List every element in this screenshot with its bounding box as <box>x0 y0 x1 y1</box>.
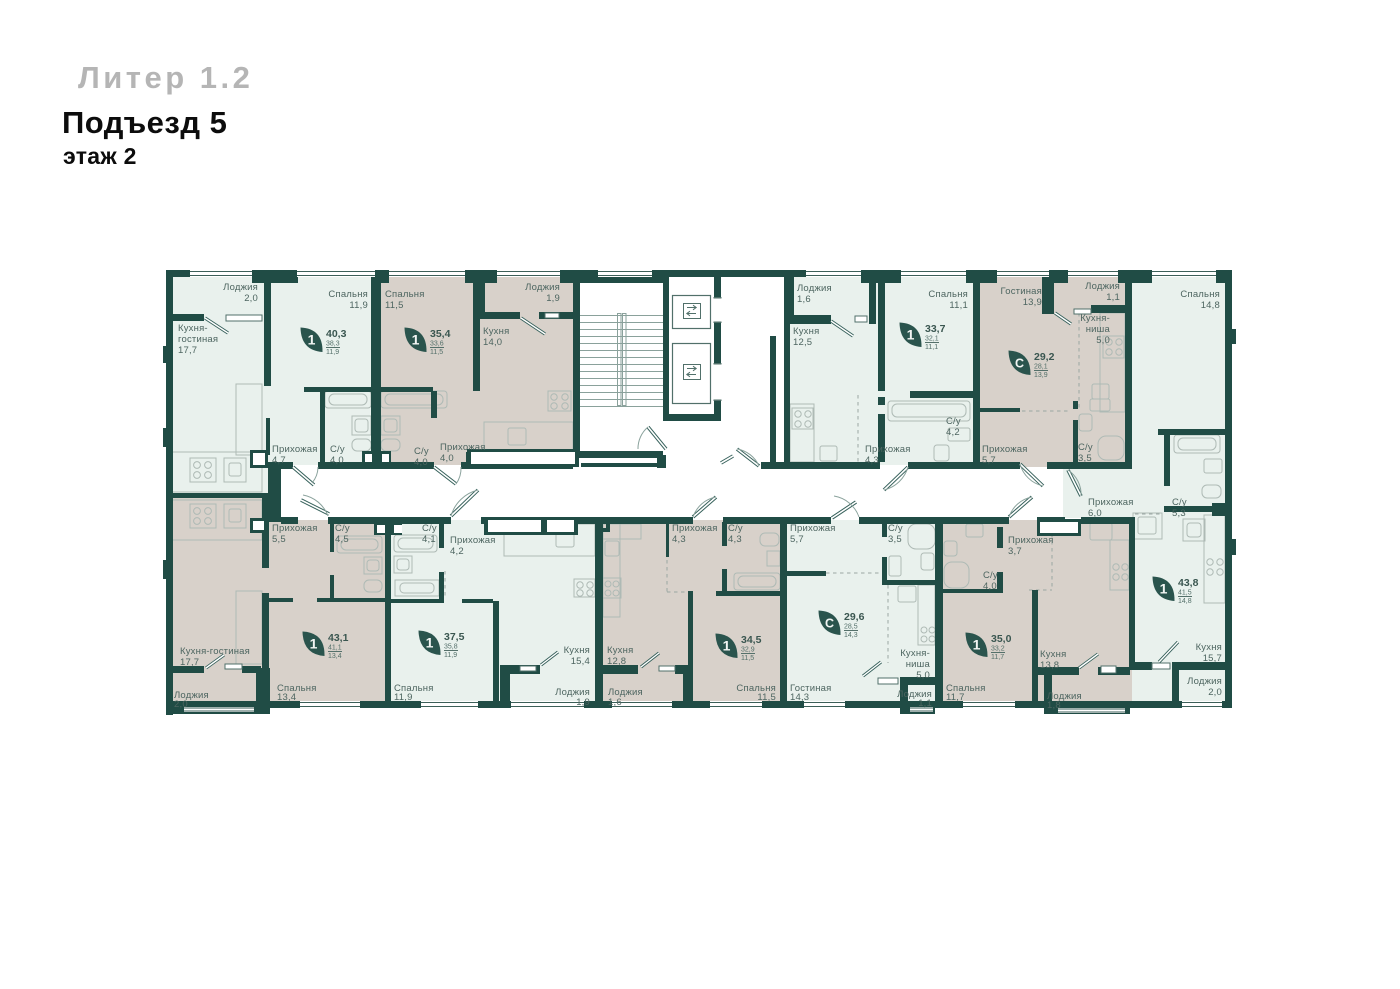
svg-text:4,0: 4,0 <box>330 455 344 466</box>
svg-text:4,0: 4,0 <box>440 453 454 464</box>
svg-text:6,0: 6,0 <box>1088 508 1102 519</box>
svg-text:Лоджия: Лоджия <box>1085 281 1120 292</box>
svg-text:1: 1 <box>723 638 731 654</box>
svg-text:4,3: 4,3 <box>672 534 686 545</box>
svg-text:13,4: 13,4 <box>328 653 342 660</box>
svg-text:Лоджия: Лоджия <box>525 282 560 293</box>
svg-text:2,0: 2,0 <box>244 293 258 304</box>
svg-text:38,3: 38,3 <box>326 341 340 348</box>
svg-text:43,1: 43,1 <box>328 632 349 644</box>
svg-text:28,5: 28,5 <box>844 624 858 631</box>
svg-text:1,6: 1,6 <box>608 697 622 708</box>
svg-text:Прихожая: Прихожая <box>672 523 718 534</box>
svg-text:11,9: 11,9 <box>326 349 339 356</box>
svg-text:11,9: 11,9 <box>444 652 457 659</box>
svg-text:15,7: 15,7 <box>1203 653 1222 664</box>
svg-text:35,8: 35,8 <box>444 644 458 651</box>
svg-text:5,0: 5,0 <box>1096 335 1110 346</box>
svg-text:Гостиная: Гостиная <box>1001 286 1042 297</box>
svg-text:5,7: 5,7 <box>790 534 804 545</box>
svg-text:11,9: 11,9 <box>394 692 413 703</box>
svg-text:1,1: 1,1 <box>918 698 932 709</box>
svg-text:4,0: 4,0 <box>414 457 428 468</box>
svg-text:32,1: 32,1 <box>925 336 939 343</box>
svg-text:11,1: 11,1 <box>949 300 968 311</box>
svg-text:ниша: ниша <box>1086 324 1111 335</box>
svg-text:Прихожая: Прихожая <box>450 535 496 546</box>
svg-text:Прихожая: Прихожая <box>272 444 318 455</box>
svg-text:11,5: 11,5 <box>385 300 404 311</box>
svg-text:1,9: 1,9 <box>576 697 590 708</box>
svg-text:Прихожая: Прихожая <box>440 442 486 453</box>
svg-text:11,5: 11,5 <box>430 349 443 356</box>
svg-text:40,3: 40,3 <box>326 328 347 340</box>
svg-text:13,4: 13,4 <box>277 692 296 703</box>
svg-text:4,2: 4,2 <box>450 546 464 557</box>
svg-text:Лоджия: Лоджия <box>797 283 832 294</box>
svg-text:12,8: 12,8 <box>607 656 626 667</box>
svg-text:С/у: С/у <box>330 444 345 455</box>
svg-text:15,4: 15,4 <box>571 656 590 667</box>
svg-text:4,2: 4,2 <box>946 427 960 438</box>
svg-text:13,8: 13,8 <box>1040 660 1059 671</box>
svg-text:14,8: 14,8 <box>1201 300 1220 311</box>
svg-text:14,3: 14,3 <box>844 632 858 639</box>
svg-text:С/у: С/у <box>983 570 998 581</box>
svg-text:5,5: 5,5 <box>272 534 286 545</box>
svg-text:С/у: С/у <box>1078 442 1093 453</box>
svg-text:1: 1 <box>973 637 981 653</box>
svg-text:32,9: 32,9 <box>741 647 755 654</box>
svg-text:Спальня: Спальня <box>928 289 968 300</box>
svg-text:Лоджия: Лоджия <box>223 282 258 293</box>
svg-text:Лоджия: Лоджия <box>1187 676 1222 687</box>
svg-text:12,5: 12,5 <box>793 337 812 348</box>
svg-text:13,9: 13,9 <box>1034 372 1048 379</box>
svg-text:Кухня: Кухня <box>793 326 819 337</box>
svg-text:С/у: С/у <box>1172 497 1187 508</box>
svg-text:Кухня-: Кухня- <box>900 648 930 659</box>
svg-text:35,0: 35,0 <box>991 633 1012 645</box>
svg-text:С/у: С/у <box>335 523 350 534</box>
svg-text:2,0: 2,0 <box>1208 687 1222 698</box>
svg-text:1: 1 <box>412 332 420 348</box>
svg-text:Прихожая: Прихожая <box>1008 535 1054 546</box>
svg-text:1,6: 1,6 <box>797 294 811 305</box>
svg-text:29,6: 29,6 <box>844 611 865 623</box>
svg-text:Прихожая: Прихожая <box>790 523 836 534</box>
svg-text:С/у: С/у <box>728 523 743 534</box>
svg-text:Спальня: Спальня <box>328 289 368 300</box>
svg-text:Прихожая: Прихожая <box>982 444 1028 455</box>
svg-text:Кухня-: Кухня- <box>1080 313 1110 324</box>
svg-text:11,1: 11,1 <box>925 344 938 351</box>
svg-text:С/у: С/у <box>946 416 961 427</box>
svg-text:1,1: 1,1 <box>1106 292 1120 303</box>
svg-text:Кухня: Кухня <box>607 645 633 656</box>
svg-text:11,5: 11,5 <box>757 692 776 703</box>
svg-text:14,3: 14,3 <box>790 692 809 703</box>
svg-text:1,9: 1,9 <box>546 293 560 304</box>
svg-text:11,5: 11,5 <box>741 655 754 662</box>
svg-text:4,3: 4,3 <box>865 455 879 466</box>
svg-text:4,0: 4,0 <box>983 581 997 592</box>
svg-text:3,5: 3,5 <box>888 534 902 545</box>
svg-text:1,8: 1,8 <box>1047 700 1061 711</box>
svg-text:Кухня: Кухня <box>564 645 590 656</box>
svg-text:33,6: 33,6 <box>430 341 444 348</box>
svg-text:33,7: 33,7 <box>925 323 946 335</box>
svg-text:Кухня: Кухня <box>1196 642 1222 653</box>
svg-text:4,5: 4,5 <box>335 534 349 545</box>
svg-text:5,0: 5,0 <box>916 670 930 681</box>
svg-text:Спальня: Спальня <box>385 289 425 300</box>
svg-text:С/у: С/у <box>414 446 429 457</box>
svg-text:Кухня: Кухня <box>483 326 509 337</box>
svg-text:11,9: 11,9 <box>349 300 368 311</box>
svg-text:11,7: 11,7 <box>991 654 1004 661</box>
svg-text:14,8: 14,8 <box>1178 598 1192 605</box>
svg-text:4,7: 4,7 <box>272 455 286 466</box>
svg-text:С: С <box>1015 357 1024 371</box>
svg-text:3,7: 3,7 <box>1008 546 1022 557</box>
svg-text:С/у: С/у <box>422 523 437 534</box>
svg-text:41,1: 41,1 <box>328 645 342 652</box>
svg-text:Прихожая: Прихожая <box>272 523 318 534</box>
svg-text:Кухня-гостиная: Кухня-гостиная <box>180 646 250 657</box>
svg-text:33,2: 33,2 <box>991 646 1005 653</box>
svg-text:4,1: 4,1 <box>422 534 436 545</box>
svg-text:1: 1 <box>426 635 434 651</box>
svg-text:С: С <box>825 617 834 631</box>
svg-text:5,7: 5,7 <box>982 455 996 466</box>
svg-text:Кухня: Кухня <box>1040 649 1066 660</box>
svg-text:Прихожая: Прихожая <box>1088 497 1134 508</box>
svg-text:2,0: 2,0 <box>174 699 188 710</box>
svg-text:1: 1 <box>310 636 318 652</box>
svg-text:3,5: 3,5 <box>1078 453 1092 464</box>
svg-text:34,5: 34,5 <box>741 634 762 646</box>
svg-text:1: 1 <box>1160 581 1168 597</box>
svg-text:ниша: ниша <box>906 659 931 670</box>
svg-text:13,9: 13,9 <box>1023 297 1042 308</box>
svg-text:28,1: 28,1 <box>1034 364 1048 371</box>
svg-text:5,3: 5,3 <box>1172 508 1186 519</box>
svg-text:17,7: 17,7 <box>180 657 199 668</box>
svg-text:11,7: 11,7 <box>946 692 965 703</box>
svg-text:43,8: 43,8 <box>1178 577 1199 589</box>
svg-text:Прихожая: Прихожая <box>865 444 911 455</box>
svg-text:37,5: 37,5 <box>444 631 465 643</box>
svg-text:29,2: 29,2 <box>1034 351 1055 363</box>
svg-text:С/у: С/у <box>888 523 903 534</box>
svg-text:41,5: 41,5 <box>1178 590 1192 597</box>
svg-text:1: 1 <box>308 332 316 348</box>
svg-text:гостиная: гостиная <box>178 334 218 345</box>
svg-text:4,3: 4,3 <box>728 534 742 545</box>
svg-text:Спальня: Спальня <box>1180 289 1220 300</box>
svg-text:Кухня-: Кухня- <box>178 323 208 334</box>
svg-text:14,0: 14,0 <box>483 337 502 348</box>
svg-text:1: 1 <box>907 327 915 343</box>
svg-text:17,7: 17,7 <box>178 345 197 356</box>
svg-text:35,4: 35,4 <box>430 328 451 340</box>
